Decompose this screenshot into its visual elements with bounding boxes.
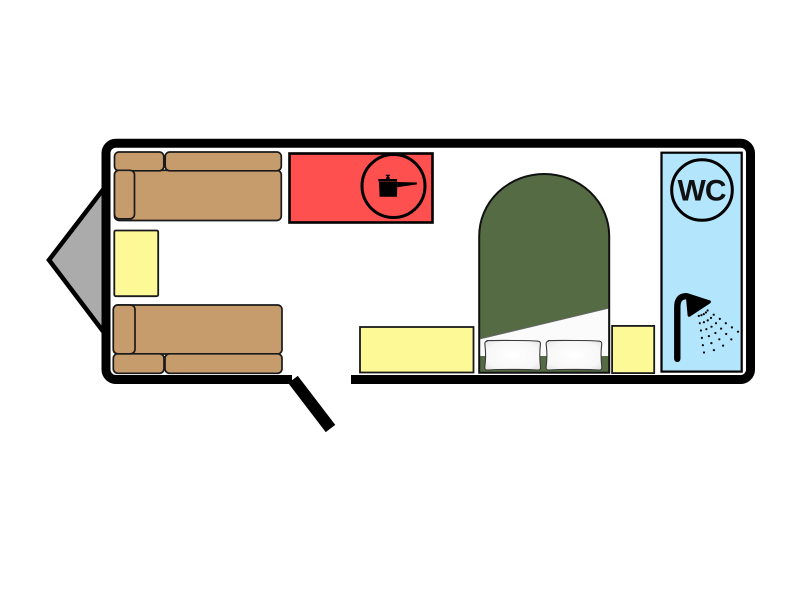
svg-text:WC: WC — [678, 175, 726, 208]
